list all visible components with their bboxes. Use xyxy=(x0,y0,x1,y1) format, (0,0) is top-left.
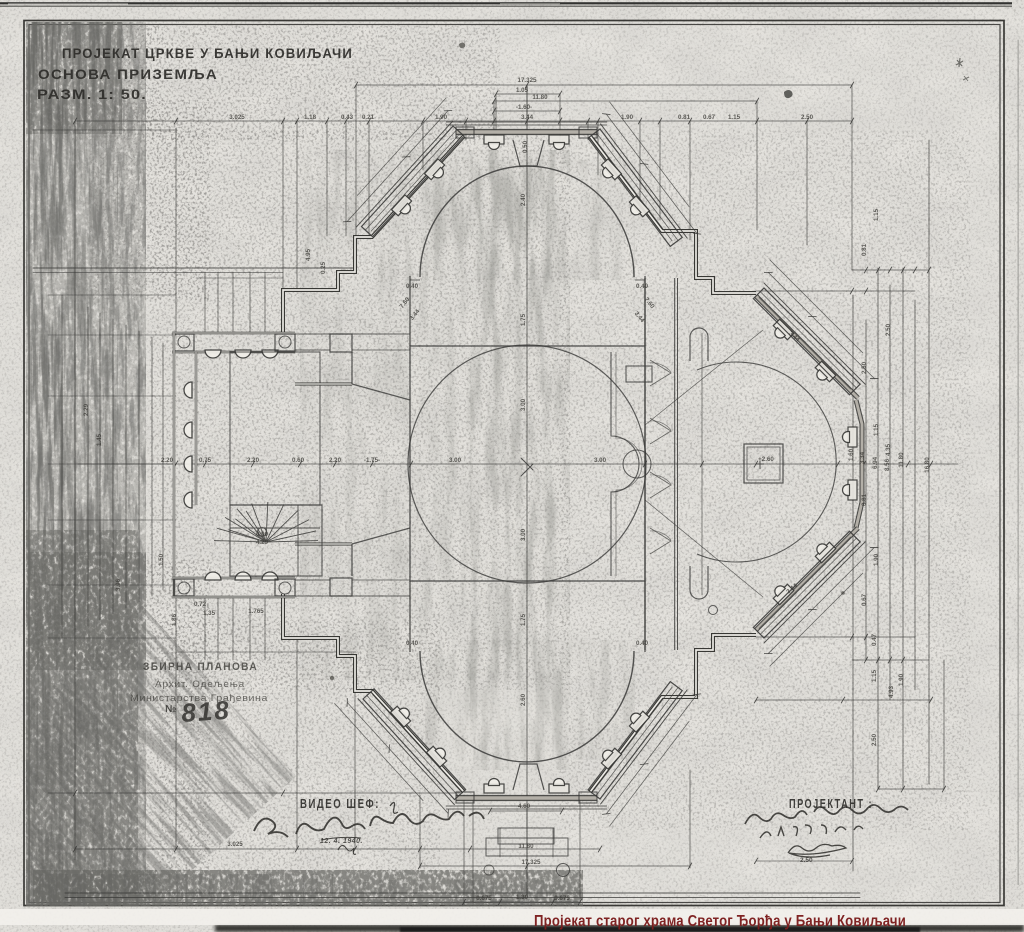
svg-text:8.56: 8.56 xyxy=(884,458,891,471)
svg-text:0.60: 0.60 xyxy=(292,457,305,464)
svg-text:3.00: 3.00 xyxy=(520,398,527,411)
svg-text:4.93: 4.93 xyxy=(888,685,895,698)
svg-text:0.72: 0.72 xyxy=(194,601,207,608)
svg-text:12. 4. 1940.: 12. 4. 1940. xyxy=(320,838,363,845)
svg-text:16.80: 16.80 xyxy=(924,457,931,473)
svg-text:Пројекат старог храма Светог Ђ: Пројекат старог храма Светог Ђорђа у Бањ… xyxy=(534,913,906,930)
svg-text:0.75: 0.75 xyxy=(199,457,212,464)
svg-text:3.34: 3.34 xyxy=(859,451,866,464)
svg-text:1.90: 1.90 xyxy=(435,114,448,121)
svg-text:0.40: 0.40 xyxy=(406,640,419,647)
svg-text:0.90: 0.90 xyxy=(256,531,269,538)
svg-text:+2.60: +2.60 xyxy=(758,456,774,463)
svg-text:РАЗМ. 1: 50.: РАЗМ. 1: 50. xyxy=(37,87,147,102)
svg-text:0.40: 0.40 xyxy=(636,640,649,647)
svg-text:0.67: 0.67 xyxy=(861,593,868,606)
svg-text:1.765: 1.765 xyxy=(248,608,264,615)
svg-text:3.00: 3.00 xyxy=(449,457,462,464)
svg-text:4.35: 4.35 xyxy=(885,443,892,456)
svg-text:1.90: 1.90 xyxy=(873,553,880,566)
svg-text:0.675: 0.675 xyxy=(476,895,492,902)
svg-text:-1.60-: -1.60- xyxy=(516,104,532,111)
svg-text:2.40: 2.40 xyxy=(520,193,527,206)
svg-text:6.94: 6.94 xyxy=(872,456,879,469)
svg-text:2.20: 2.20 xyxy=(247,457,260,464)
svg-text:2.50: 2.50 xyxy=(861,361,868,374)
svg-text:1.15: 1.15 xyxy=(873,423,880,436)
svg-text:0.43: 0.43 xyxy=(341,114,354,121)
svg-text:4.95: 4.95 xyxy=(305,248,312,261)
svg-text:0.67: 0.67 xyxy=(703,114,716,121)
svg-text:1.30: 1.30 xyxy=(516,894,529,901)
svg-text:1.90: 1.90 xyxy=(898,673,905,686)
svg-text:2.50: 2.50 xyxy=(801,114,814,121)
svg-text:1.90: 1.90 xyxy=(621,114,634,121)
svg-text:4.60: 4.60 xyxy=(518,803,531,810)
svg-text:3.00: 3.00 xyxy=(520,528,527,541)
svg-text:2.50: 2.50 xyxy=(871,733,878,746)
svg-text:ВИДЕО ШЕФ:: ВИДЕО ШЕФ: xyxy=(300,797,380,811)
svg-text:17.325: 17.325 xyxy=(522,859,541,866)
svg-text:11.80: 11.80 xyxy=(532,94,548,101)
svg-text:1.75: 1.75 xyxy=(520,313,527,326)
svg-text:3.025: 3.025 xyxy=(227,841,243,848)
svg-text:1.45: 1.45 xyxy=(96,433,103,446)
svg-text:2.20: 2.20 xyxy=(161,457,174,464)
svg-text:1.60: 1.60 xyxy=(848,448,855,461)
svg-text:0.40: 0.40 xyxy=(636,283,649,290)
svg-text:1.75: 1.75 xyxy=(520,613,527,626)
svg-text:2.29: 2.29 xyxy=(83,403,90,416)
svg-text:0.675: 0.675 xyxy=(554,895,570,902)
svg-text:2.50: 2.50 xyxy=(800,857,813,864)
svg-text:0.50: 0.50 xyxy=(522,140,529,153)
svg-text:2.60: 2.60 xyxy=(520,693,527,706)
svg-text:11.80: 11.80 xyxy=(518,843,534,850)
svg-text:1.50: 1.50 xyxy=(158,553,165,566)
svg-text:818: 818 xyxy=(180,695,231,728)
svg-text:4.29: 4.29 xyxy=(256,539,269,546)
svg-text:0.47: 0.47 xyxy=(871,633,878,646)
svg-text:1.35: 1.35 xyxy=(203,610,216,617)
svg-text:17.325: 17.325 xyxy=(518,77,537,84)
svg-text:3.44: 3.44 xyxy=(521,114,534,121)
svg-text:0.40: 0.40 xyxy=(406,283,419,290)
svg-text:3.025: 3.025 xyxy=(229,114,245,121)
svg-text:1.15: 1.15 xyxy=(873,208,880,221)
svg-text:2.50: 2.50 xyxy=(885,323,892,336)
svg-text:2.20: 2.20 xyxy=(329,457,342,464)
svg-text:0.81: 0.81 xyxy=(678,114,691,121)
svg-text:№: № xyxy=(165,704,176,715)
svg-text:11.80: 11.80 xyxy=(898,452,905,468)
svg-text:Архит. Одељења: Архит. Одељења xyxy=(155,679,245,690)
svg-text:1.05: 1.05 xyxy=(516,87,529,94)
svg-text:-1.75-: -1.75- xyxy=(364,457,380,464)
svg-text:3.00: 3.00 xyxy=(594,457,607,464)
svg-text:ОСНОВА ПРИЗЕМЉА: ОСНОВА ПРИЗЕМЉА xyxy=(38,67,218,82)
svg-text:0.21: 0.21 xyxy=(362,114,375,121)
svg-text:1.15: 1.15 xyxy=(728,114,741,121)
svg-text:ЗБИРНА ПЛАНОВА: ЗБИРНА ПЛАНОВА xyxy=(143,661,258,673)
svg-text:1.86: 1.86 xyxy=(171,613,178,626)
svg-text:0.81: 0.81 xyxy=(861,243,868,256)
svg-text:0.25: 0.25 xyxy=(320,261,327,274)
svg-text:3.96: 3.96 xyxy=(115,578,122,591)
svg-text:1.15: 1.15 xyxy=(871,669,878,682)
svg-text:0.81: 0.81 xyxy=(861,493,868,506)
svg-text:ПРОЈЕКТАНТ :: ПРОЈЕКТАНТ : xyxy=(789,797,873,811)
svg-text:1.18: 1.18 xyxy=(304,114,317,121)
svg-text:ПРОЈЕКАТ ЦРКВЕ У БАЊИ КОВИ: ПРОЈЕКАТ ЦРКВЕ У БАЊИ КОВИЉАЧИ xyxy=(62,46,353,61)
